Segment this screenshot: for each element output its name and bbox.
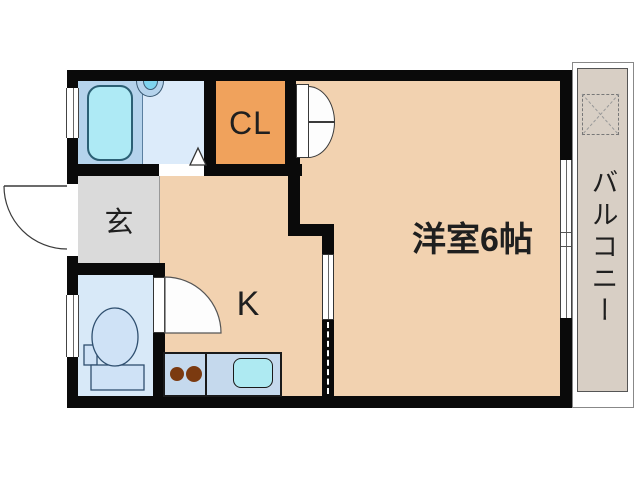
washing-machine-area [582,94,619,135]
bathroom-door-slot [159,164,204,176]
closet-label: CL [216,81,285,166]
slider-wall-pocket [322,320,334,396]
wall-bottom [67,396,572,408]
toilet-room-floor [78,275,153,396]
kitchen-sink [233,358,273,388]
wall-left-1 [67,70,78,88]
wall-left-3 [67,256,78,296]
wall-jog [288,224,334,236]
stove-burner-left [170,367,184,381]
wall-bath-closet [204,81,216,176]
stove-burner-right [186,366,202,382]
sliding-door-panel [322,254,334,320]
sliding-door-panel-line [328,255,329,319]
wall-top [67,70,572,81]
sliding-door-track-dashes [327,322,329,394]
balcony-window [560,160,572,318]
toilet-window-line [73,295,74,357]
counter-divider [205,354,207,395]
balcony-window-latch-1 [561,232,571,233]
wall-right-1 [560,70,572,160]
wall-left-4 [67,357,78,408]
balcony-window-latch-2 [561,246,571,247]
balcony-label: バルコニー [584,150,622,345]
bathroom-window-line [73,88,74,138]
toilet-window [66,295,79,357]
kitchen-label: K [226,283,270,325]
wall-toilet-1 [153,263,165,277]
toilet-door-panel [153,277,165,333]
wall-closet-right [285,81,296,166]
wall-left-2 [67,138,78,184]
wall-right-2 [560,318,572,408]
bathroom-window [66,88,79,138]
kitchen-counter [163,352,282,397]
wall-band-left [67,164,160,176]
entrance-label: 玄 [78,176,160,263]
western-room-label: 洋室6帖 [385,215,560,257]
balcony-window-line [566,160,567,318]
bathtub [87,85,133,161]
entrance-door-arc [4,186,67,249]
slider-wall-top [322,236,334,254]
wall-entrance-bottom [67,263,165,275]
floor-plan: 洋室6帖 K CL 玄 バルコニー [0,0,640,480]
